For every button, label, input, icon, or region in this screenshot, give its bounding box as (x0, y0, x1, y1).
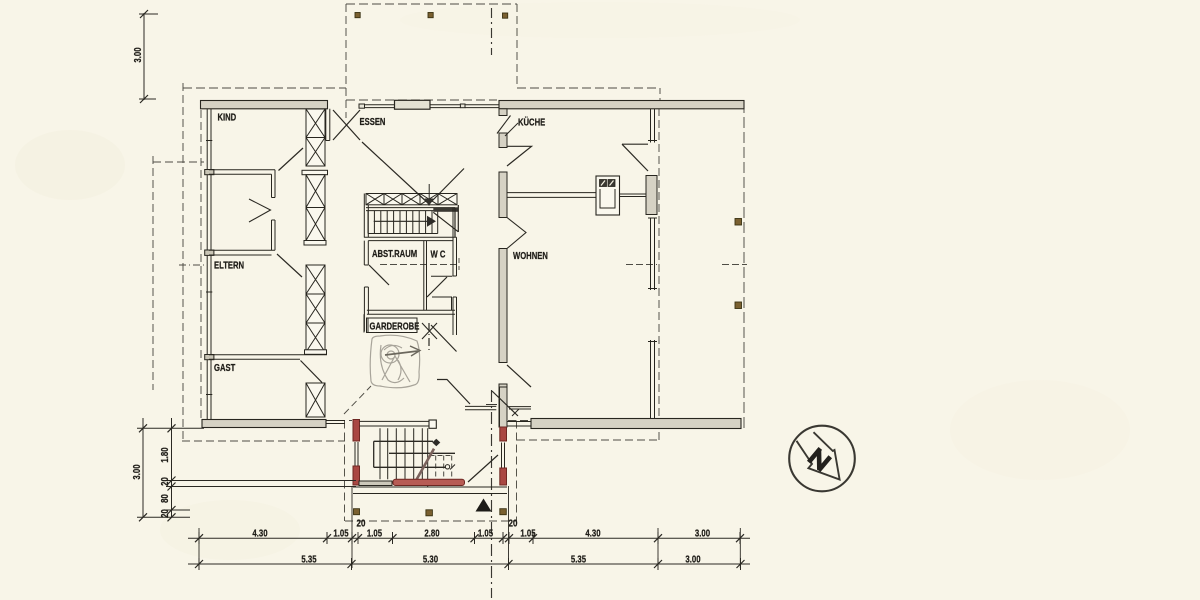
svg-text:KÜCHE: KÜCHE (518, 116, 545, 127)
svg-text:80: 80 (159, 494, 170, 503)
svg-text:20: 20 (159, 477, 170, 486)
svg-text:2.80: 2.80 (424, 528, 439, 539)
svg-text:ESSEN: ESSEN (360, 116, 386, 127)
svg-text:3.00: 3.00 (131, 464, 142, 479)
svg-text:3.00: 3.00 (685, 553, 700, 564)
svg-text:WOHNEN: WOHNEN (513, 250, 548, 261)
svg-text:1.80: 1.80 (159, 447, 170, 462)
svg-text:3.00: 3.00 (132, 47, 143, 62)
svg-text:W C: W C (431, 248, 446, 259)
svg-text:3.00: 3.00 (695, 528, 710, 539)
svg-text:1.05: 1.05 (367, 528, 382, 539)
svg-text:5.35: 5.35 (571, 553, 586, 564)
svg-text:1.05: 1.05 (478, 528, 493, 539)
svg-text:1.05: 1.05 (520, 528, 535, 539)
svg-text:GARDEROBE: GARDEROBE (370, 320, 420, 331)
svg-text:4.30: 4.30 (585, 528, 600, 539)
svg-text:5.30: 5.30 (423, 553, 438, 564)
svg-text:KIND: KIND (218, 111, 237, 122)
svg-text:20: 20 (357, 518, 366, 529)
svg-text:20: 20 (509, 518, 518, 529)
svg-text:4.30: 4.30 (252, 528, 267, 539)
svg-text:5.35: 5.35 (301, 553, 316, 564)
svg-text:GAST: GAST (214, 362, 236, 373)
svg-text:20: 20 (159, 509, 170, 518)
svg-text:ABST.RAUM: ABST.RAUM (372, 248, 417, 259)
svg-text:ELTERN: ELTERN (214, 259, 244, 270)
svg-text:1.05: 1.05 (333, 528, 348, 539)
